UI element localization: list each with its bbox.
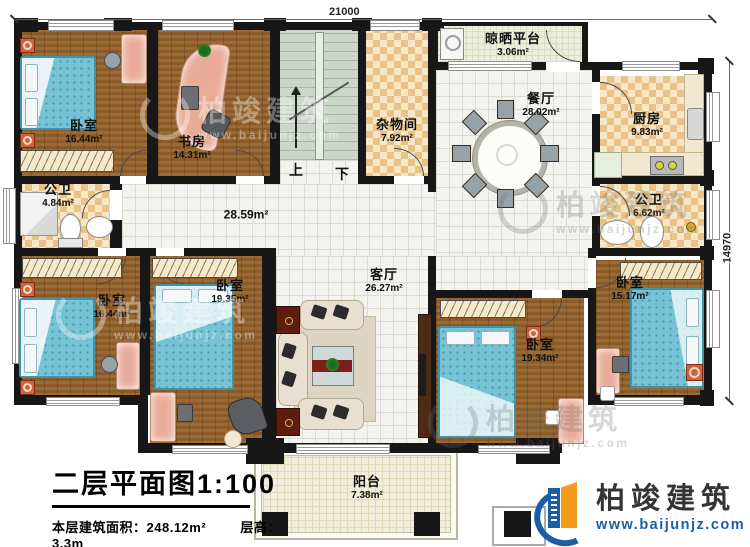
nightstand (20, 282, 35, 297)
title-underline (52, 505, 250, 508)
window (162, 20, 234, 31)
wardrobe (440, 300, 526, 318)
brand-logo: 柏竣建筑 www.baijunjz.com (534, 482, 745, 536)
tv (419, 354, 426, 396)
column (700, 390, 714, 406)
label-platform: 晾晒平台3.06m² (485, 32, 541, 58)
sink (600, 220, 634, 245)
floor-area-label: 本层建筑面积： (52, 520, 147, 535)
bed (438, 326, 516, 438)
pillow (686, 298, 699, 327)
floor-hall-strip (428, 256, 596, 290)
fridge (594, 152, 622, 178)
pillow (481, 331, 510, 345)
dimension-line-top (14, 19, 712, 20)
window (448, 61, 532, 71)
floor-corridor (122, 184, 436, 256)
pillow (162, 289, 192, 303)
stair-arrow (295, 90, 297, 148)
chair (101, 356, 118, 373)
dining-chair (497, 189, 514, 208)
wardrobe (20, 150, 114, 172)
logo-building-orange (561, 482, 577, 528)
plant (198, 44, 211, 57)
floor-area-value: 248.12m² (147, 520, 207, 535)
door-gap (110, 190, 122, 220)
pillow (446, 331, 475, 345)
door-gap (588, 258, 596, 288)
floor-drain (686, 222, 696, 232)
wall (436, 290, 596, 298)
stove-burner (668, 161, 677, 170)
window (370, 20, 420, 31)
bed (19, 298, 95, 378)
dining-chair (452, 145, 471, 162)
door-gap (98, 248, 126, 256)
plan-title: 二层平面图1:100 (52, 462, 312, 501)
window (48, 20, 114, 31)
story-height-label: 层高： (240, 520, 281, 535)
door-gap (156, 248, 184, 256)
computer (181, 86, 199, 110)
side-cabinet (276, 408, 300, 436)
balcony-column (414, 512, 440, 536)
label-corridor: 28.59m² (224, 208, 269, 221)
brand-website: www.baijunjz.com (596, 517, 745, 533)
nightstand (20, 380, 35, 395)
chair (104, 52, 121, 69)
story-height-value: 3.3m (52, 536, 84, 547)
dining-chair (540, 145, 559, 162)
pillow (24, 308, 37, 337)
dimension-width: 21000 (326, 6, 363, 18)
desk (558, 398, 584, 444)
column (698, 58, 714, 74)
floor-plan: 上 下 (0, 0, 750, 547)
nightstand (20, 133, 35, 148)
nightstand (20, 38, 35, 53)
sink (86, 216, 113, 238)
bay-window (706, 92, 720, 142)
porch-column (504, 511, 531, 537)
label-bath-right: 公卫6.62m² (633, 193, 665, 219)
balcony-slider (296, 444, 390, 454)
washing-machine-door (445, 35, 461, 51)
label-bedroom-right: 卧室15.17m² (611, 276, 648, 302)
desk (121, 34, 147, 84)
label-bedroom-top-left: 卧室16.44m² (65, 119, 102, 145)
door-gap (394, 176, 424, 184)
desk (150, 392, 176, 442)
brand-logo-icon (534, 482, 586, 536)
toilet (640, 216, 664, 248)
window (46, 397, 120, 406)
pillow (25, 98, 38, 126)
door-gap (532, 290, 562, 298)
chair (600, 386, 615, 401)
label-storage: 杂物间7.92m² (376, 118, 418, 144)
sofa (298, 398, 364, 430)
wall (588, 248, 712, 256)
brand-name: 柏竣建筑 (596, 485, 745, 514)
stair-arrow-head (291, 86, 301, 95)
plant (326, 358, 339, 371)
toilet-tank (58, 238, 83, 248)
column-balcony-joint (246, 438, 284, 464)
nightstand (686, 364, 703, 381)
wardrobe (22, 258, 122, 278)
pillow (686, 336, 699, 365)
wall-platform (582, 22, 588, 66)
door-gap (236, 176, 264, 184)
window (622, 61, 680, 71)
label-balcony: 阳台7.38m² (351, 475, 383, 501)
column (700, 246, 714, 260)
label-kitchen: 厨房9.83m² (631, 112, 663, 138)
pouf (224, 430, 242, 448)
label-study: 书房14.31m² (173, 135, 210, 161)
wall (147, 22, 158, 176)
stove-burner (655, 161, 664, 170)
side-cabinet (276, 306, 300, 334)
window (614, 397, 684, 406)
wall (140, 248, 150, 395)
plan-subtitle: 本层建筑面积：248.12m² 层高：3.3m (52, 517, 312, 547)
stairs-down-label: 下 (335, 164, 349, 184)
bay-window (706, 190, 720, 240)
pillow (25, 64, 38, 92)
chair (545, 410, 560, 425)
desk (116, 342, 140, 390)
kitchen-sink (687, 108, 704, 140)
bay-window (706, 290, 720, 348)
label-dining: 餐厅28.02m² (522, 92, 559, 118)
label-bedroom-bottom-mid: 卧室19.35m² (211, 279, 248, 305)
label-bedroom-bottom-mid2: 卧室19.34m² (521, 338, 558, 364)
stairs-up-label: 上 (289, 160, 303, 180)
door-gap (120, 176, 146, 184)
dimension-height: 14970 (721, 233, 733, 264)
label-living: 客厅26.27m² (365, 268, 402, 294)
wall (270, 22, 280, 184)
sofa (278, 332, 308, 406)
window (478, 445, 550, 454)
dining-chair (497, 100, 514, 119)
dining-table-center (496, 144, 518, 166)
wall-platform (434, 22, 586, 26)
computer (177, 404, 193, 422)
door-gap (592, 82, 600, 114)
logo-window-slits (551, 494, 557, 522)
computer (612, 356, 629, 373)
label-bedroom-bottom-left: 卧室16.44m² (93, 294, 130, 320)
wardrobe (152, 258, 238, 278)
bay-window (3, 188, 16, 244)
door-gap (592, 186, 600, 216)
label-bath-left: 公卫4.84m² (42, 183, 74, 209)
door-gap (546, 62, 580, 72)
title-block: 二层平面图1:100 本层建筑面积：248.12m² 层高：3.3m (52, 462, 312, 547)
wall (358, 22, 366, 184)
pillow (24, 344, 37, 373)
